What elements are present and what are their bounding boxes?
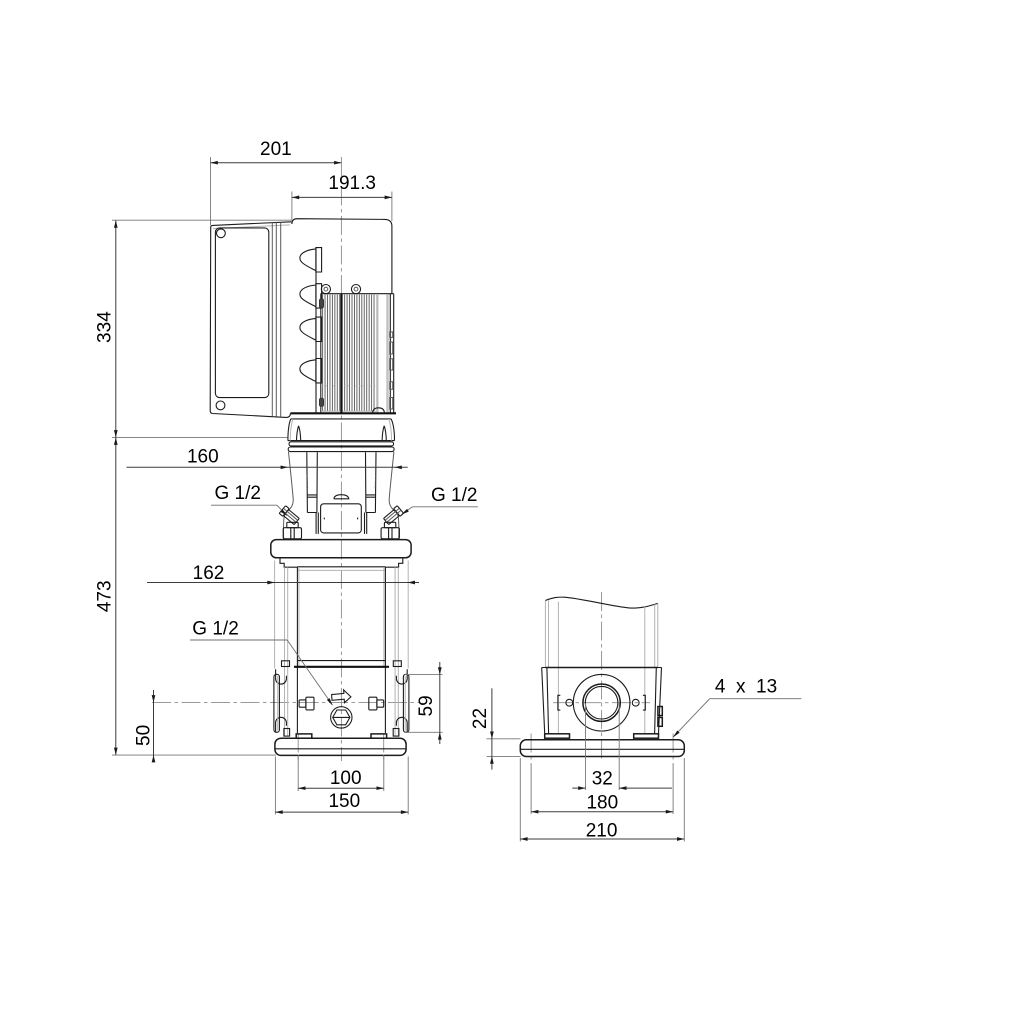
svg-text:G 1/2: G 1/2 (192, 618, 238, 639)
svg-text:334: 334 (95, 311, 116, 343)
svg-text:50: 50 (133, 725, 154, 746)
svg-text:191.3: 191.3 (328, 173, 376, 194)
svg-text:G 1/2: G 1/2 (215, 483, 261, 504)
svg-text:22: 22 (470, 708, 491, 729)
svg-text:G 1/2: G 1/2 (431, 485, 477, 506)
svg-text:210: 210 (586, 821, 618, 842)
svg-text:4 x 13: 4 x 13 (715, 676, 777, 697)
svg-text:32: 32 (592, 768, 613, 789)
svg-text:473: 473 (95, 580, 116, 612)
svg-text:162: 162 (193, 563, 225, 584)
svg-text:100: 100 (330, 768, 362, 789)
svg-text:180: 180 (586, 793, 618, 814)
svg-text:150: 150 (328, 791, 360, 812)
svg-text:201: 201 (260, 139, 292, 160)
svg-text:59: 59 (416, 695, 437, 716)
svg-text:160: 160 (187, 447, 219, 468)
